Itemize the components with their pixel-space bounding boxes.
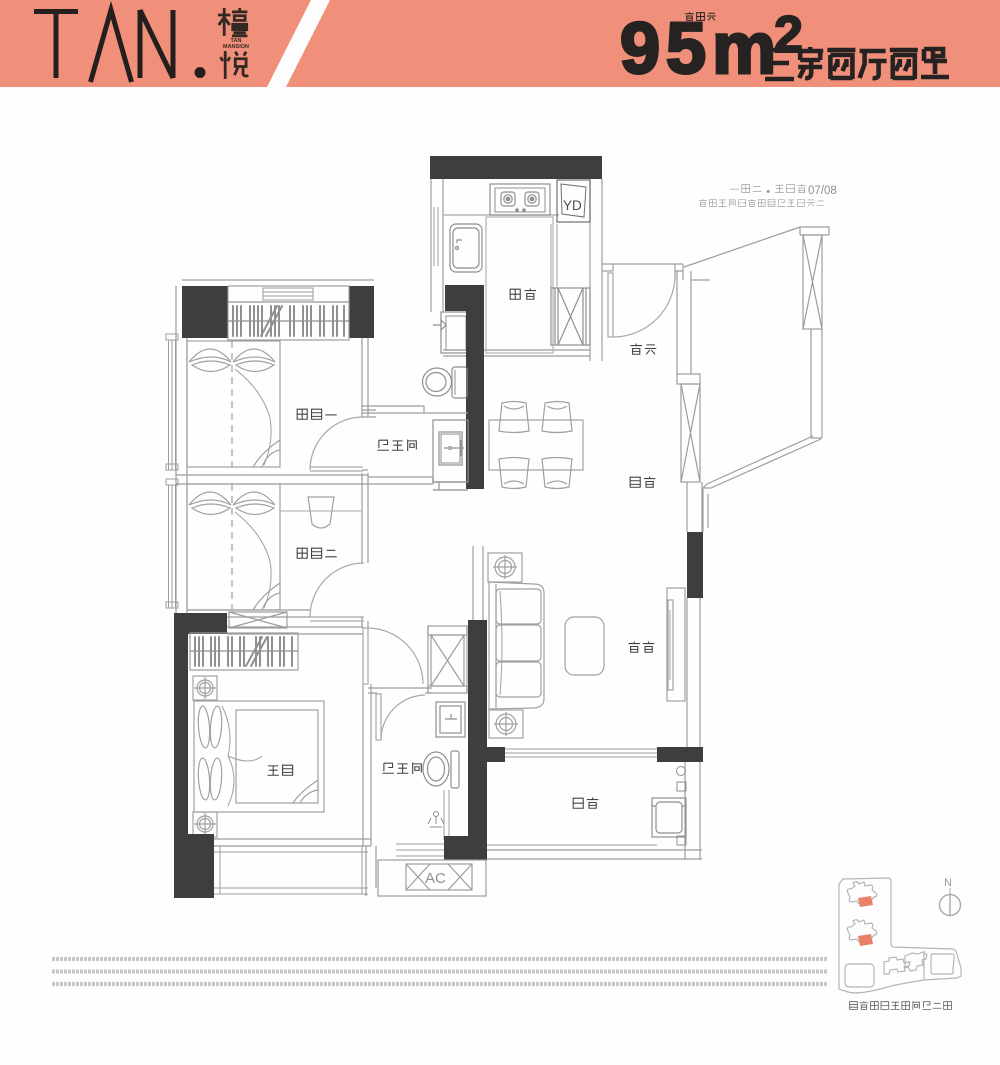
svg-text:MANSION: MANSION bbox=[223, 44, 249, 50]
svg-text:95m: 95m bbox=[620, 9, 782, 89]
svg-text:07/08: 07/08 bbox=[808, 185, 837, 197]
svg-text:N: N bbox=[944, 877, 952, 889]
svg-text:YD: YD bbox=[563, 198, 582, 213]
svg-text:AC: AC bbox=[425, 870, 446, 887]
